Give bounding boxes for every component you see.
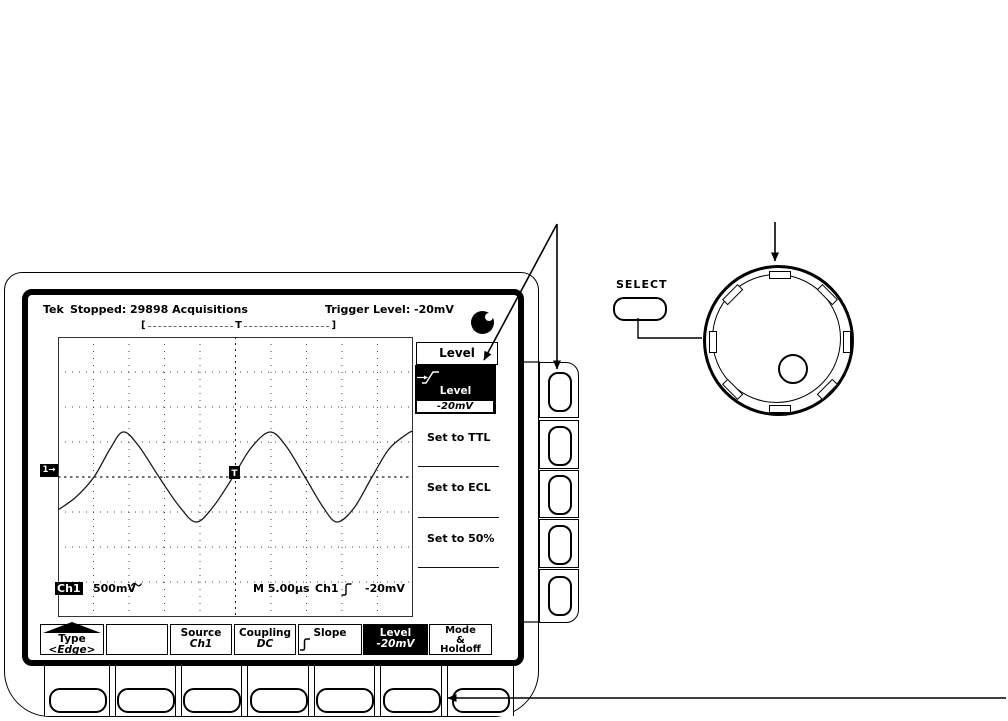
graticule: T [58, 337, 413, 617]
bezel-button-source[interactable] [183, 688, 241, 713]
acquisition-window-bracket: [ T ] [141, 320, 336, 332]
bottom-menu-source: Source Ch1 [170, 624, 232, 655]
bottom-menu-slope: Slope [298, 624, 362, 655]
bezel-button-slope[interactable] [316, 688, 374, 713]
bezel-button-level[interactable] [383, 688, 441, 713]
menu-label: Holdoff [430, 645, 491, 655]
bezel-button-type[interactable] [49, 688, 107, 713]
select-button-connector [638, 318, 702, 338]
bezel-button-coupling[interactable] [250, 688, 308, 713]
menu-separator [418, 567, 499, 568]
acquisition-activity-icon [471, 311, 494, 334]
channel-1-ground-marker: 1→ [40, 464, 58, 477]
crt-display: Tek Stopped: 29898 Acquisitions Trigger … [22, 289, 524, 666]
menu-value: <Edge> [41, 645, 103, 656]
selected-item-label: Level [415, 386, 496, 397]
trigger-point-marker: T [229, 466, 240, 479]
side-bezel-button-2[interactable] [548, 426, 572, 466]
menu-value: DC [235, 639, 295, 650]
manual-figure-trigger-menu: { "colors": {"ink": "#000000", "paper": … [0, 0, 1008, 721]
timebase-readout: M 5.00µs [253, 582, 310, 595]
tek-logo: Tek [43, 303, 64, 316]
knob-grip-mark [709, 331, 717, 353]
sine-coupling-icon [131, 581, 142, 589]
readout-line: Ch1 500mV M 5.00µs Ch1 -20mV [28, 582, 518, 597]
trigger-marker-label: T [231, 469, 238, 479]
rising-edge-icon [341, 583, 352, 596]
trigger-source-readout: Ch1 [315, 582, 339, 595]
status-bar: Tek Stopped: 29898 Acquisitions Trigger … [28, 303, 518, 318]
knob-finger-dimple[interactable] [778, 354, 808, 384]
vertical-scale: 500mV [93, 582, 136, 595]
bracket-right: ] [331, 321, 336, 331]
bracket-dash [148, 326, 234, 327]
selected-menu-triangle-icon [43, 622, 101, 633]
acquisition-count: 29898 Acquisitions [130, 303, 248, 316]
bottom-menu-blank [106, 624, 168, 655]
side-menu-item-ttl: Set to TTL [427, 431, 522, 444]
trigger-level-readout: Trigger Level: -20mV [325, 303, 454, 316]
side-bezel-button-1[interactable] [548, 372, 572, 412]
bracket-dash [244, 326, 330, 327]
menu-value: -20mV [364, 639, 427, 650]
menu-separator [418, 466, 499, 467]
bottom-menu-type: Type <Edge> [40, 624, 104, 655]
bracket-trigger-t: T [235, 321, 242, 331]
knob-grip-mark [843, 331, 851, 353]
knob-grip-mark [769, 271, 791, 279]
knob-grip-mark [769, 405, 791, 413]
rising-edge-icon [299, 638, 361, 651]
channel-badge: Ch1 [55, 582, 83, 595]
side-bezel-button-3[interactable] [548, 475, 572, 515]
bezel-button-blank[interactable] [117, 688, 175, 713]
select-button-label: SELECT [616, 278, 668, 291]
menu-separator [418, 517, 499, 518]
trigger-level-value: -20mV [365, 582, 405, 595]
selected-item-value: -20mV [417, 401, 493, 412]
acquisition-state: Stopped: [70, 303, 126, 316]
side-menu-item-50: Set to 50% [427, 532, 522, 545]
bottom-menu-mode-holdoff: Mode & Holdoff [429, 624, 492, 655]
bottom-menu-level-selected: Level -20mV [363, 624, 428, 655]
general-purpose-knob[interactable] [703, 265, 854, 416]
side-menu-title: Level [416, 342, 498, 365]
select-button[interactable] [613, 297, 667, 321]
bezel-button-mode[interactable] [452, 688, 510, 713]
menu-value: Ch1 [171, 639, 231, 650]
bottom-menu-coupling: Coupling DC [234, 624, 296, 655]
side-menu-selected-level: Level -20mV [415, 365, 496, 414]
side-bezel-button-5[interactable] [548, 576, 572, 616]
rising-edge-icon [415, 369, 496, 386]
bracket-left: [ [141, 321, 146, 331]
side-menu-item-ecl: Set to ECL [427, 481, 522, 494]
side-bezel-button-4[interactable] [548, 525, 572, 565]
